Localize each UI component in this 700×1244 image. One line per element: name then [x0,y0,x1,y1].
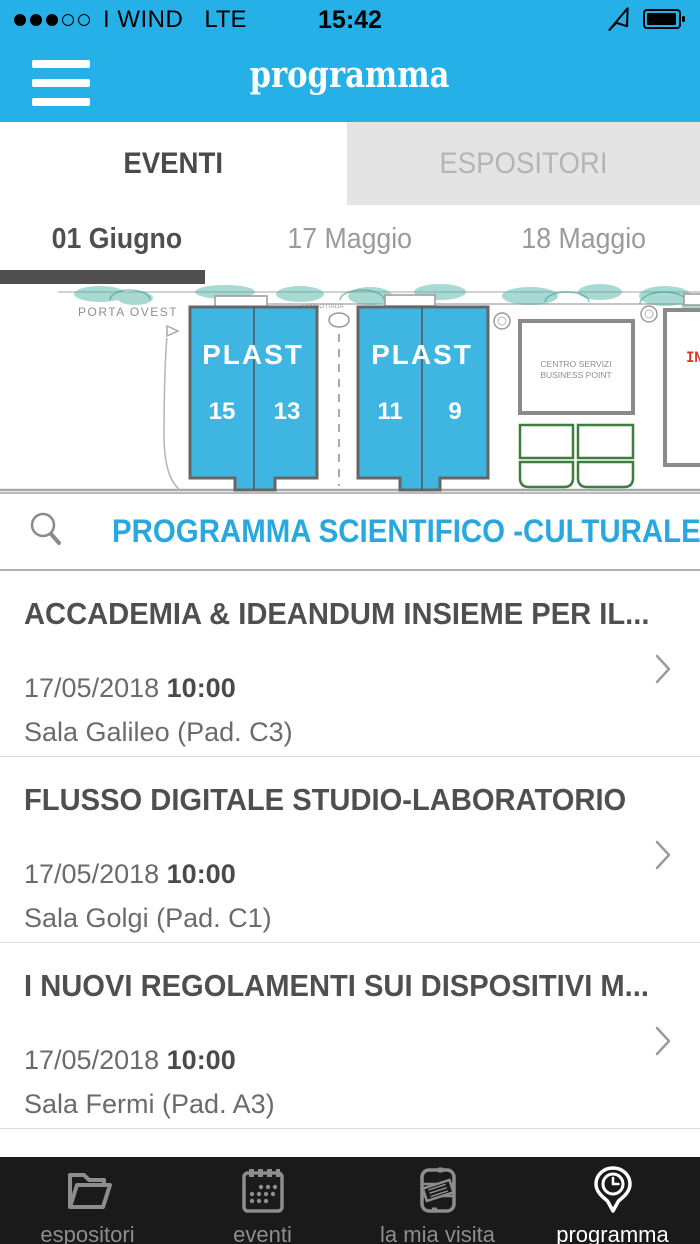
hall1-num-left: 15 [209,398,236,425]
tab-eventi[interactable]: EVENTI [0,122,347,205]
status-right [604,4,688,39]
partial-red-label: IN [686,350,700,366]
event-list-item[interactable]: I NUOVI REGOLAMENTI SUI DISPOSITIVI M...… [0,943,700,1129]
right-partial-building: IN [665,310,700,465]
green-plots [520,425,633,487]
hall1-name: PLAST [202,339,304,370]
tabbar-label: eventi [233,1222,292,1244]
event-list: ACCADEMIA & IDEANDUM INSIEME PER IL... 1… [0,571,700,1129]
list-filler [0,1129,700,1157]
clock-pin-icon [587,1165,639,1220]
hall1-num-right: 13 [274,398,301,425]
date-tabs: 01 Giugno 17 Maggio 18 Maggio [0,205,700,284]
hall2-num-left: 11 [377,398,402,425]
tabbar-label: la mia visita [380,1222,495,1244]
battery-icon [642,4,688,39]
tabbar-label: programma [556,1222,668,1244]
tabbar-item-programma[interactable]: programma [525,1157,700,1244]
program-category-label: PROGRAMMA SCIENTIFICO -CULTURALE [112,513,700,550]
search-icon [28,510,64,553]
hall2-name: PLAST [371,339,473,370]
event-location: Sala Galileo (Pad. C3) [24,717,676,748]
event-title: FLUSSO DIGITALE STUDIO-LABORATORIO [24,783,676,817]
active-date-underline [0,270,205,284]
location-arrow-icon [604,4,632,39]
top-tabs: EVENTI ESPOSITORI [0,122,700,205]
event-list-item[interactable]: ACCADEMIA & IDEANDUM INSIEME PER IL... 1… [0,571,700,757]
folder-icon [62,1165,114,1220]
porta-ovest-label: PORTA OVEST [78,305,178,319]
venue-map[interactable]: PORTA OVEST CORSO ITALIA PLAST 15 13 PLA… [0,284,700,492]
tabbar-item-eventi[interactable]: eventi [175,1157,350,1244]
visit-notes-icon [412,1165,464,1220]
chevron-right-icon [654,653,672,690]
app-screen: I WIND LTE 15:42 programma EVENTI ESPO [0,0,700,1244]
app-bar: programma [0,40,700,122]
event-title: ACCADEMIA & IDEANDUM INSIEME PER IL... [24,597,676,631]
chevron-right-icon [654,839,672,876]
calendar-icon [237,1165,289,1220]
service-center-box: CENTRO SERVIZI BUSINESS POINT [520,321,633,413]
service-label-1: CENTRO SERVIZI [540,359,611,369]
event-location: Sala Fermi (Pad. A3) [24,1089,676,1120]
clock-time: 15:42 [0,6,700,35]
event-title: I NUOVI REGOLAMENTI SUI DISPOSITIVI M... [24,969,676,1003]
status-bar: I WIND LTE 15:42 [0,0,700,40]
event-datetime: 17/05/2018 10:00 [24,859,676,890]
bottom-tab-bar: espositori eventi [0,1157,700,1244]
hall2-num-right: 9 [448,398,461,425]
tabbar-label: espositori [40,1222,134,1244]
event-datetime: 17/05/2018 10:00 [24,673,676,704]
program-search-row[interactable]: PROGRAMMA SCIENTIFICO -CULTURALE [0,492,700,571]
event-datetime: 17/05/2018 10:00 [24,1045,676,1076]
page-title: programma [0,54,700,96]
date-tab-17-maggio[interactable]: 17 Maggio [233,205,466,284]
tabbar-item-espositori[interactable]: espositori [0,1157,175,1244]
tab-espositori[interactable]: ESPOSITORI [347,122,700,205]
event-list-item[interactable]: FLUSSO DIGITALE STUDIO-LABORATORIO 17/05… [0,757,700,943]
hall-plast-15-13: PLAST 15 13 [190,307,317,490]
hall-plast-11-9: PLAST 11 9 [358,307,488,490]
chevron-right-icon [654,1025,672,1062]
date-tab-18-maggio[interactable]: 18 Maggio [467,205,700,284]
service-label-2: BUSINESS POINT [540,370,611,380]
tabbar-item-la-mia-visita[interactable]: la mia visita [350,1157,525,1244]
event-location: Sala Golgi (Pad. C1) [24,903,676,934]
